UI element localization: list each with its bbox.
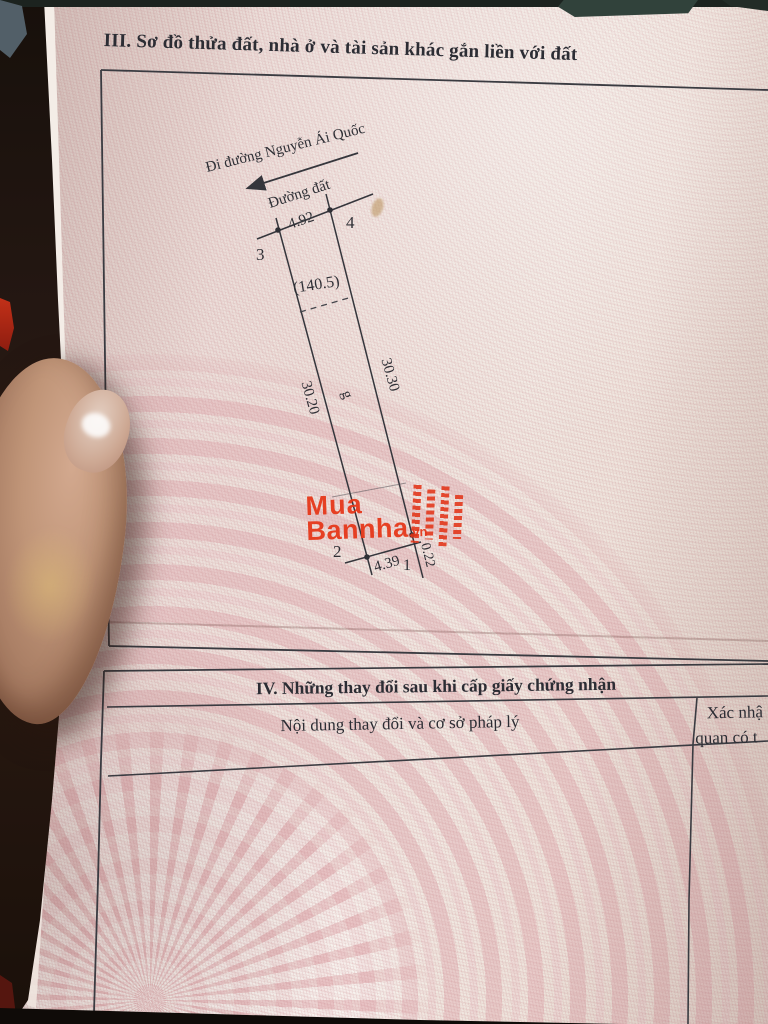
- right-header-line1: Xác nhậ: [695, 698, 768, 726]
- vertical-mark-column: [438, 486, 449, 546]
- corner-1: 1: [403, 557, 411, 574]
- nail-glare: [79, 409, 114, 440]
- dirt-road-label: Đường đất: [266, 177, 333, 212]
- certificate-photo: Đi đường Nguyễn Ái Quốc Đường đất 4.92 3…: [0, 0, 768, 1024]
- thumb-press-highlight: [0, 523, 100, 649]
- area-label: (140.5): [292, 273, 341, 297]
- dim-right: 30.30: [378, 356, 403, 393]
- vertical-mark-column: [453, 495, 463, 539]
- corner-3: 3: [256, 245, 265, 264]
- parcel-letter: g: [338, 388, 356, 401]
- section4-right-column-header: Xác nhậ quan có t: [695, 698, 768, 751]
- vertical-mark-column: [411, 485, 422, 543]
- right-header-line2: quan có t: [695, 723, 768, 751]
- road-direction-label: Đi đường Nguyễn Ái Quốc: [204, 120, 367, 176]
- dim-top: 4.92: [286, 209, 316, 233]
- corner-4: 4: [346, 213, 355, 232]
- watermark-word2-text: Bannha: [306, 512, 409, 546]
- watermark-vertical-marks: [408, 485, 469, 550]
- dim-bottom: 4.39: [372, 553, 402, 576]
- vertical-mark-column: [425, 489, 436, 539]
- dim-left: 30.20: [298, 379, 323, 416]
